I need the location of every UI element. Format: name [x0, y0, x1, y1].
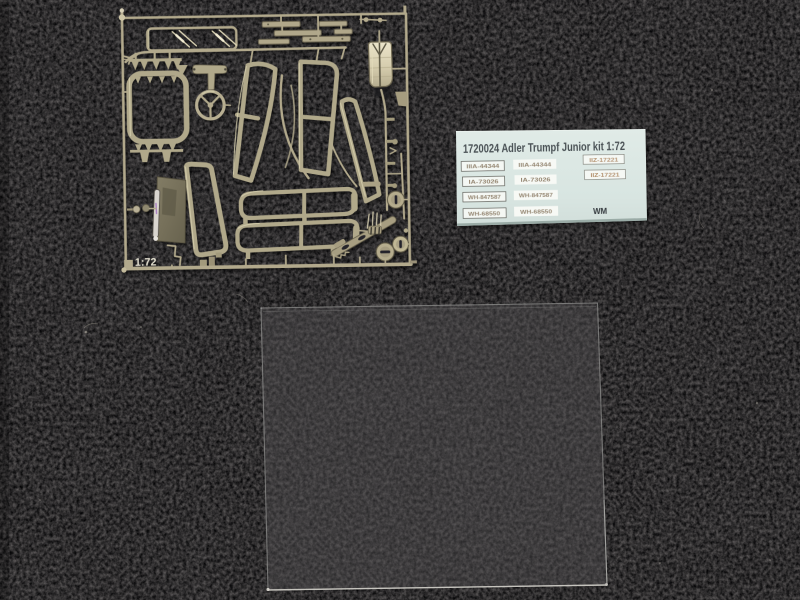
svg-text:WM: WM	[593, 207, 607, 216]
svg-text:WH-68550: WH-68550	[468, 211, 500, 218]
svg-text:IIZ-17221: IIZ-17221	[589, 157, 618, 164]
svg-text:WH-847587: WH-847587	[519, 193, 553, 200]
svg-text:IIIA-44344: IIIA-44344	[466, 164, 499, 171]
svg-text:IIZ-17221: IIZ-17221	[590, 173, 619, 180]
svg-text:1:72: 1:72	[135, 256, 157, 268]
svg-text:IA-73026: IA-73026	[469, 179, 499, 186]
svg-text:WH-847587: WH-847587	[468, 195, 501, 202]
svg-text:1720024 Adler Trumpf Junior ki: 1720024 Adler Trumpf Junior kit 1:72	[463, 139, 626, 156]
svg-text:WH-68550: WH-68550	[520, 209, 552, 216]
svg-text:IA-73026: IA-73026	[521, 178, 551, 185]
svg-text:IIIA-44344: IIIA-44344	[518, 162, 551, 169]
